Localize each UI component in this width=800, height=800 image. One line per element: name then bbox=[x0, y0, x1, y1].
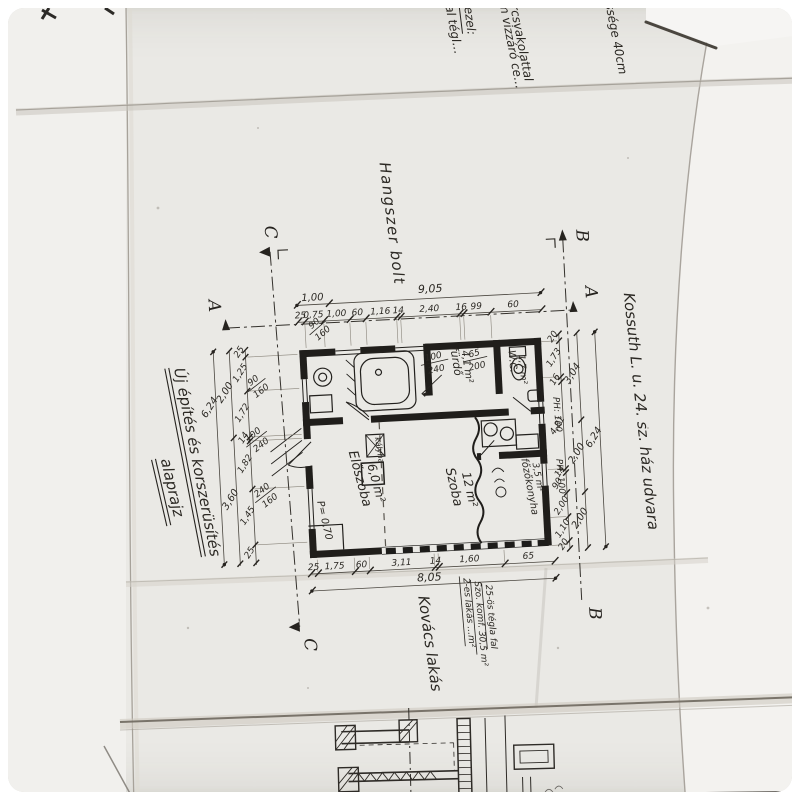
section-marker-a: A bbox=[203, 297, 224, 312]
section-marker-b: B bbox=[571, 228, 592, 243]
dim-value: 3,60 bbox=[220, 487, 241, 512]
note-line: …alakisztásával tégl… bbox=[426, 8, 466, 55]
section-marker-c: C bbox=[299, 638, 320, 652]
dim-value: 1,72 bbox=[233, 402, 252, 425]
dim-value: 1,45 bbox=[239, 505, 258, 528]
dim-value: 1,00 bbox=[326, 309, 347, 320]
dim-value: 2,00 bbox=[570, 506, 591, 531]
dim-total: 6,24 bbox=[584, 425, 605, 450]
dim-value: 16 bbox=[455, 303, 467, 314]
opening-size-window-large: 240 160 bbox=[249, 479, 284, 513]
resident-label: Kovács lakás bbox=[414, 595, 445, 693]
scanned-blueprint-photo: C bbox=[8, 8, 792, 792]
dim-value: 2,00 bbox=[553, 494, 572, 517]
dim-value: 1,73 bbox=[545, 346, 564, 369]
dim-value: 3,11 bbox=[391, 558, 412, 569]
dim-total: 1,00 bbox=[301, 292, 324, 304]
dim-value: 1,10 bbox=[554, 517, 573, 540]
kitchen-stove bbox=[481, 419, 516, 447]
dim-value: 60 bbox=[351, 308, 363, 319]
dim-value: 3,04 bbox=[562, 361, 583, 386]
dim-value: 14 bbox=[430, 556, 442, 567]
room-living-label: Szoba 12 m² bbox=[442, 465, 481, 510]
hatched-wall-column bbox=[457, 718, 472, 792]
opening-size-entry-door: 100 240 bbox=[240, 423, 275, 457]
section-marker-a: A bbox=[580, 284, 601, 299]
bathtub bbox=[353, 350, 416, 411]
margin-notes-bottom: 2-es lakás …m² Szo. komf. 30,5 m² 25-ös … bbox=[459, 574, 500, 668]
dim-value: 65 bbox=[522, 551, 534, 562]
floor-level-mark: P= 0,70 bbox=[314, 500, 334, 541]
section-marker-c: C bbox=[260, 225, 281, 239]
dim-total: 9,05 bbox=[418, 282, 443, 296]
dim-value: 2,40 bbox=[419, 304, 440, 315]
dim-value: 60 bbox=[356, 560, 368, 571]
fixtures bbox=[266, 344, 550, 553]
dim-value: 14 bbox=[392, 306, 404, 317]
section-marker-b: B bbox=[584, 606, 605, 621]
dim-value: 1,16 bbox=[370, 307, 391, 318]
dim-value: 99 bbox=[470, 302, 482, 313]
margin-notes-top: …alakisztásával tégl… …cetonfödém vizzár… bbox=[426, 8, 631, 94]
bath-sink bbox=[310, 395, 333, 413]
dim-value: 1,60 bbox=[459, 554, 480, 565]
dim-value: 60 bbox=[507, 300, 519, 311]
paper-edges bbox=[8, 8, 792, 792]
kitchen-sink bbox=[516, 434, 539, 449]
dim-value: 25 bbox=[308, 563, 320, 574]
dim-total: 8,05 bbox=[417, 570, 442, 584]
opening-size-bath-door: 100 240 bbox=[419, 349, 451, 378]
blueprint-drawing: C bbox=[8, 8, 792, 792]
boiler bbox=[313, 368, 332, 387]
note-line: …szélessége 40cm bbox=[594, 8, 630, 76]
shop-label: Hangszer bolt bbox=[376, 161, 409, 286]
street-label: Kossuth L. u. 24. sz. ház udvara bbox=[620, 292, 663, 531]
dim-value: 1,82 bbox=[236, 453, 255, 476]
dim-value: 1,75 bbox=[324, 561, 345, 572]
floor-plan: 1,00 9,05 25 0,75 1,00 60 1,16 14 2,40 1… bbox=[124, 8, 670, 706]
room-bath-label: fürdő 4,1 m² bbox=[447, 345, 474, 384]
